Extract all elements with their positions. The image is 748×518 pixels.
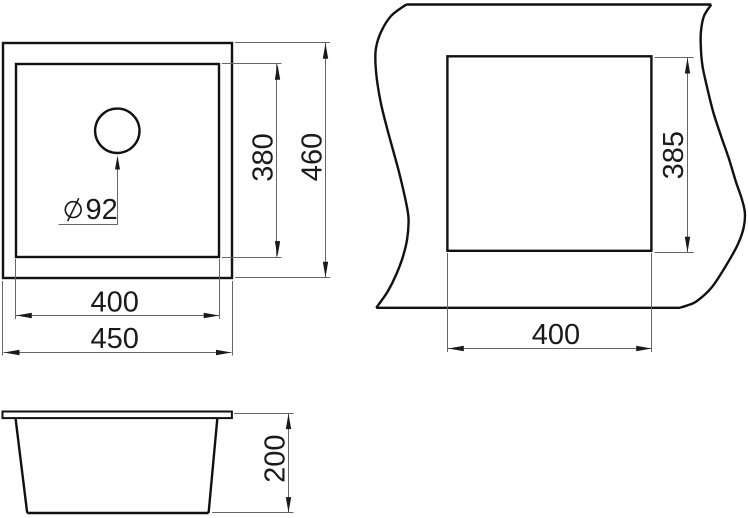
svg-text:200: 200 bbox=[260, 435, 292, 483]
svg-text:460: 460 bbox=[297, 133, 329, 181]
svg-text:450: 450 bbox=[91, 323, 139, 355]
svg-text:92: 92 bbox=[86, 194, 118, 226]
svg-text:400: 400 bbox=[91, 287, 139, 319]
svg-text:380: 380 bbox=[247, 133, 279, 181]
svg-text:385: 385 bbox=[658, 131, 690, 179]
svg-text:400: 400 bbox=[532, 319, 580, 351]
